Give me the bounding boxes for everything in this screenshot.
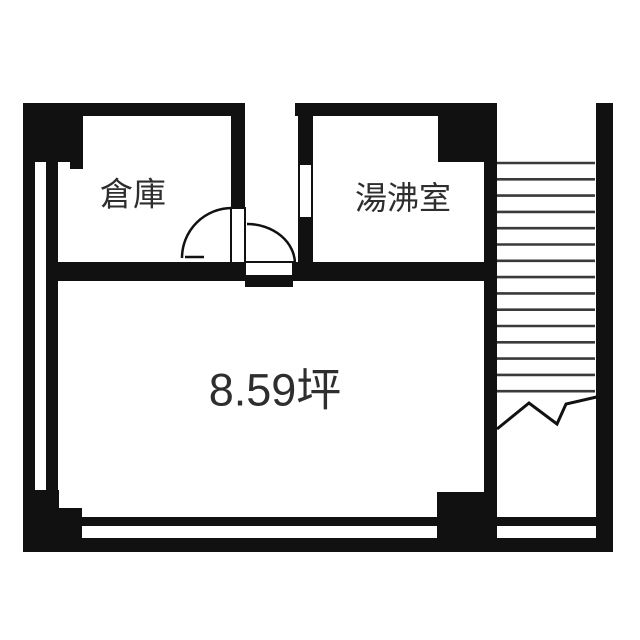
left-inner-wall	[46, 162, 58, 491]
room-label-kitchenette: 湯沸室	[355, 182, 451, 214]
storage-door-leaf	[231, 208, 245, 263]
main-door-opening	[245, 262, 293, 276]
room-label-area: 8.59坪	[209, 368, 342, 413]
storage-door-arc	[182, 208, 232, 258]
room-label-storage: 倉庫	[100, 178, 166, 211]
room-divider-right	[293, 262, 497, 281]
floorplan-svg	[0, 0, 640, 640]
bottom-wall-upper	[82, 517, 600, 526]
stair-partition-wall	[484, 103, 497, 552]
bottom-wall-lower	[23, 538, 613, 552]
kitchenette-opening-jamb-left	[298, 165, 300, 217]
main-door-arc	[247, 224, 295, 264]
right-outer-wall	[596, 103, 613, 552]
kitchenette-left-wall-upper	[298, 116, 313, 165]
kitchenette-opening-jamb-right	[311, 165, 313, 217]
left-outer-wall	[23, 103, 35, 552]
stair-break-line	[497, 396, 601, 429]
storage-right-wall	[231, 116, 245, 208]
room-divider-left	[46, 262, 245, 281]
main-door-sill	[245, 276, 293, 287]
top-wall-right	[295, 103, 497, 116]
top-left-pillar-step	[70, 162, 83, 169]
floorplan-canvas: 倉庫 湯沸室 8.59坪	[0, 0, 640, 640]
